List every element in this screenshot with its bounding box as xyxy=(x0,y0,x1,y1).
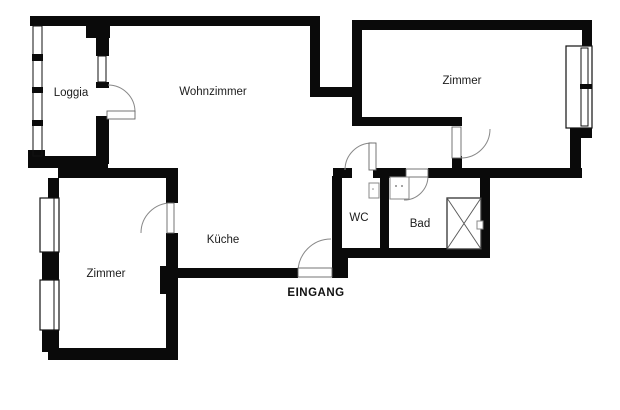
entrance-door-arc xyxy=(298,239,331,272)
room-labels: Loggia Wohnzimmer Zimmer Küche WC Bad Zi… xyxy=(54,75,482,299)
wall-zimmer-top xyxy=(352,20,592,30)
wall-zimmer2-left-b xyxy=(42,250,59,280)
wall-zimmer2-bottom xyxy=(48,348,178,360)
loggia-glazing-divider-1 xyxy=(32,54,43,61)
wc-door-arc xyxy=(345,143,372,170)
wall-zimmer-left xyxy=(352,20,362,126)
bad-door-leaf xyxy=(406,169,428,177)
shaft-valve-icon xyxy=(477,221,483,229)
zimmer-bottom-left-door-leaf xyxy=(167,203,174,233)
entrance-door-leaf xyxy=(298,268,332,277)
room-label-kueche: Küche xyxy=(207,234,240,246)
bad-washbasin-tap xyxy=(395,185,397,187)
zimmer-top-right-door-arc xyxy=(461,129,490,158)
floor-plan: Loggia Wohnzimmer Zimmer Küche WC Bad Zi… xyxy=(0,0,620,410)
wc-washbasin xyxy=(369,183,379,198)
zimmer-top-right-door-leaf xyxy=(452,127,461,158)
loggia-door-leaf xyxy=(107,111,135,119)
bad-washbasin-tap2 xyxy=(401,185,403,187)
bad-washbasin xyxy=(390,177,409,199)
loggia-glazing-divider-2 xyxy=(32,87,43,93)
room-label-zimmer-bottom-left: Zimmer xyxy=(87,268,126,280)
wall-zimmer-right-upper xyxy=(582,30,592,48)
room-label-bad: Bad xyxy=(410,218,430,230)
wall-kueche-bottom xyxy=(162,268,298,278)
room-label-zimmer-top-right: Zimmer xyxy=(443,75,482,87)
loggia-door-arc xyxy=(108,85,135,112)
room-label-wohnzimmer: Wohnzimmer xyxy=(179,86,247,98)
wall-hall-bottom-right xyxy=(428,168,582,178)
wall-wc-bad-divider xyxy=(380,176,389,252)
walls xyxy=(28,16,592,360)
entrance-label: EINGANG xyxy=(287,287,344,299)
wall-wc-left xyxy=(332,176,342,252)
wall-zimmer-bottom xyxy=(352,117,462,126)
zimmer-top-right-window-divider xyxy=(580,84,592,89)
wall-zimmer2-right-a xyxy=(166,178,178,203)
loggia-inner-window xyxy=(98,56,106,82)
room-label-loggia: Loggia xyxy=(54,87,89,99)
wall-entry-step xyxy=(332,250,348,278)
wc-washbasin-tap xyxy=(372,188,374,190)
zimmer-bottom-left-window-2 xyxy=(40,280,59,330)
wall-wohnzimmer-right xyxy=(310,16,320,97)
loggia-glazing-divider-3 xyxy=(32,120,43,126)
zimmer-bottom-left-door-arc xyxy=(141,203,171,233)
zimmer-bottom-left-window-1 xyxy=(40,198,59,252)
wall-top xyxy=(30,16,320,26)
wall-zimmer2-right-block xyxy=(160,266,178,294)
wall-loggia-divider-upper xyxy=(96,16,109,56)
room-label-wc: WC xyxy=(349,212,368,224)
wall-zimmer2-left-a xyxy=(48,178,59,200)
floor-plan-drawing: Loggia Wohnzimmer Zimmer Küche WC Bad Zi… xyxy=(0,0,620,410)
wall-loggia-divider-mid xyxy=(96,82,109,88)
wall-loggia-bottom xyxy=(38,156,108,168)
wall-zimmer2-top xyxy=(58,168,178,178)
wc-door-leaf xyxy=(369,143,376,170)
